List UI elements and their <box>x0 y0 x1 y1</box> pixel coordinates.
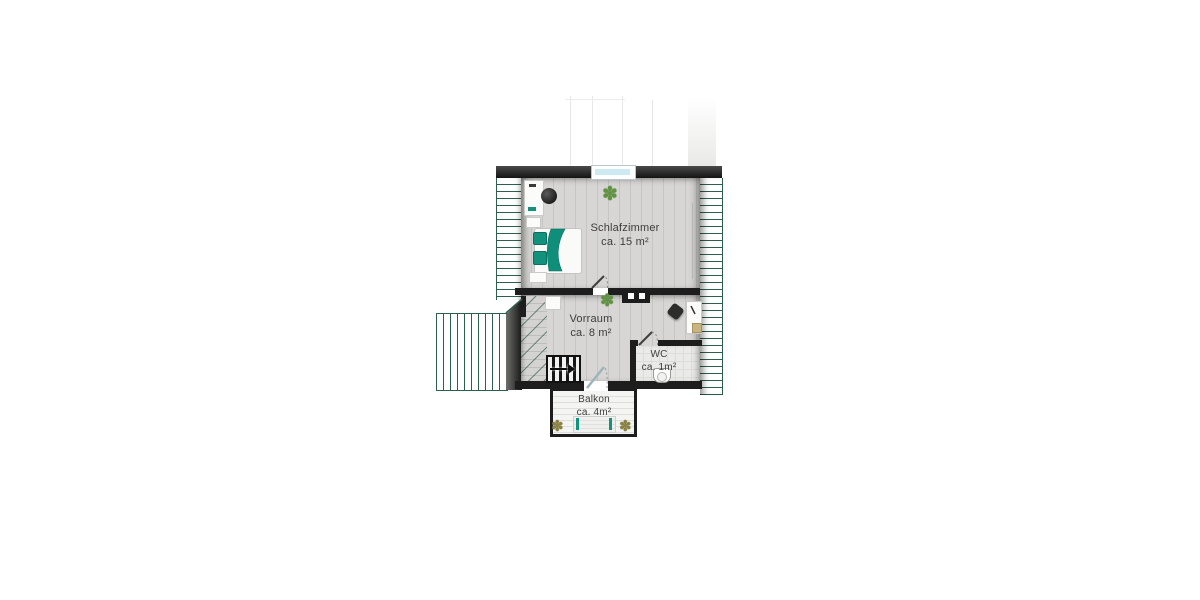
nightstand <box>529 272 547 283</box>
balcony-rail-top-right <box>608 388 637 391</box>
room-area: ca. 4m² <box>560 406 628 419</box>
plant-icon: ✽ <box>602 185 618 204</box>
roof-hatch-lower-left <box>436 313 508 391</box>
window <box>591 165 636 180</box>
balcony-rail-top-left <box>550 388 584 391</box>
roof-shade <box>688 98 716 166</box>
roof-ridge-line <box>652 100 653 166</box>
room-label-vorraum: Vorraum ca. 8 m² <box>545 312 637 341</box>
roof-ridge-line <box>592 96 593 166</box>
room-name: Vorraum <box>545 312 637 326</box>
wardrobe <box>622 288 650 303</box>
bed-pillow <box>533 251 547 265</box>
stairs-down-marker <box>546 355 581 383</box>
room-label-wc: WC ca. 1m² <box>630 348 688 374</box>
room-area: ca. 8 m² <box>545 326 637 340</box>
room-area: ca. 15 m² <box>565 235 685 249</box>
room-name: Schlafzimmer <box>565 221 685 235</box>
wall-bedroom-vorraum-left <box>515 288 593 295</box>
window-glass <box>595 169 630 175</box>
shelf <box>545 296 561 310</box>
room-area: ca. 1m² <box>630 361 688 374</box>
nightstand <box>526 217 541 228</box>
desk-accessory <box>528 207 536 211</box>
roof-ridge-line <box>622 96 623 166</box>
desk-lamp <box>529 184 536 187</box>
plant-icon: ✽ <box>551 419 564 434</box>
floor-plan: ✽ ✽ ✽ ✽ Schlafzimmer ca. 15 m² Vorraum c… <box>0 0 1200 600</box>
stairwell-void <box>506 298 522 390</box>
roof-hatch-left <box>496 178 522 300</box>
room-name: Balkon <box>560 393 628 406</box>
balcony-rail-right <box>634 389 637 437</box>
roof-ridge-line <box>565 99 625 100</box>
wardrobe-door <box>628 293 634 299</box>
bench-post <box>576 418 579 430</box>
stairs-arrow-icon <box>550 368 570 370</box>
office-chair <box>541 188 557 204</box>
plant-icon: ✽ <box>600 292 614 309</box>
room-name: WC <box>630 348 688 361</box>
room-label-balkon: Balkon ca. 4m² <box>560 393 628 419</box>
wardrobe-door <box>639 293 645 299</box>
roof-ridge-line <box>570 96 571 166</box>
bench-post <box>609 418 612 430</box>
stair-wall <box>521 296 526 317</box>
storage-box <box>692 323 702 333</box>
roof-hatch-right <box>700 178 723 395</box>
room-label-schlafzimmer: Schlafzimmer ca. 15 m² <box>565 221 685 250</box>
bed-pillow <box>533 232 547 245</box>
stairs-arrow-head-icon <box>568 364 575 374</box>
wall-wc-top-right <box>658 340 702 346</box>
knee-wall-line <box>692 203 693 279</box>
plant-icon: ✽ <box>619 419 632 434</box>
